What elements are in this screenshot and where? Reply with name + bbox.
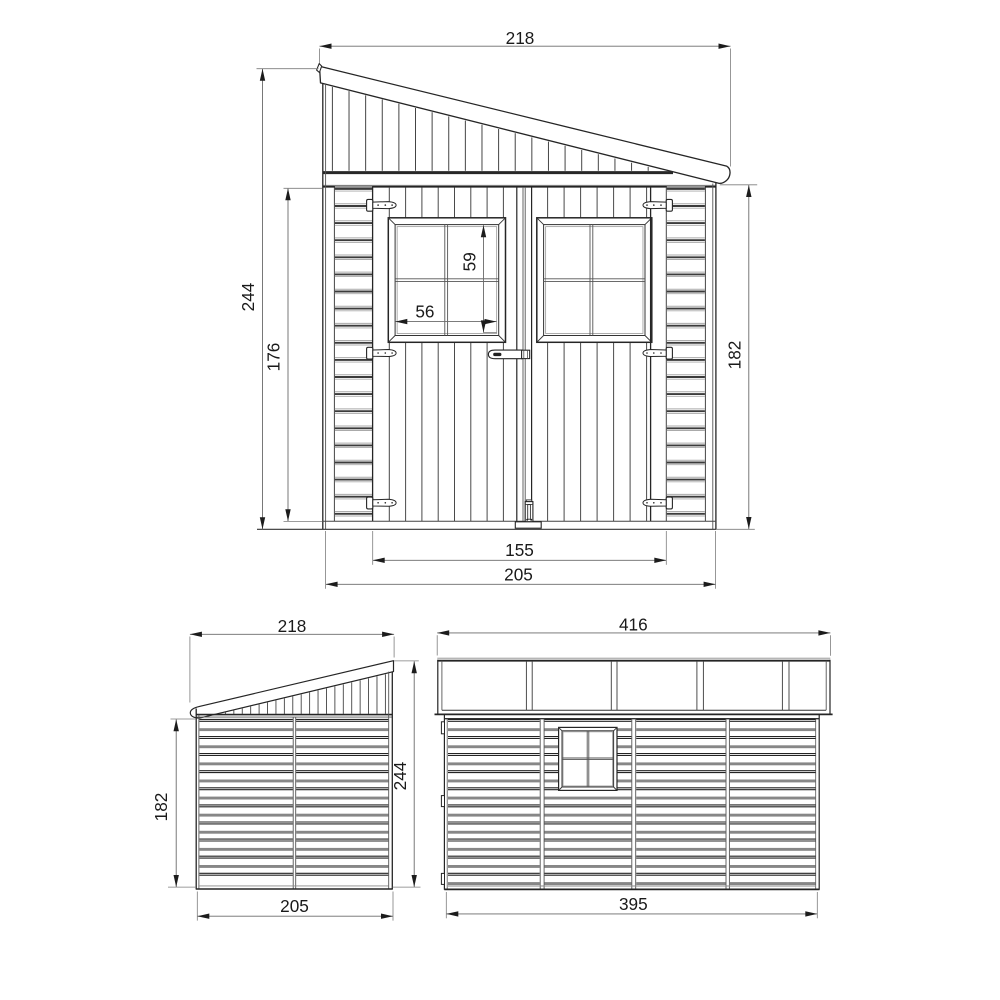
svg-text:218: 218 [278,616,307,636]
svg-text:176: 176 [263,343,283,372]
svg-text:59: 59 [459,252,479,271]
svg-text:182: 182 [151,793,171,822]
svg-text:56: 56 [415,302,434,322]
svg-text:205: 205 [280,896,309,916]
svg-text:244: 244 [238,282,258,311]
svg-text:205: 205 [504,564,533,584]
svg-text:182: 182 [725,341,745,370]
svg-text:244: 244 [390,761,410,790]
svg-text:416: 416 [619,615,648,635]
svg-text:155: 155 [505,540,534,560]
svg-text:395: 395 [619,894,648,914]
svg-text:218: 218 [506,28,535,48]
